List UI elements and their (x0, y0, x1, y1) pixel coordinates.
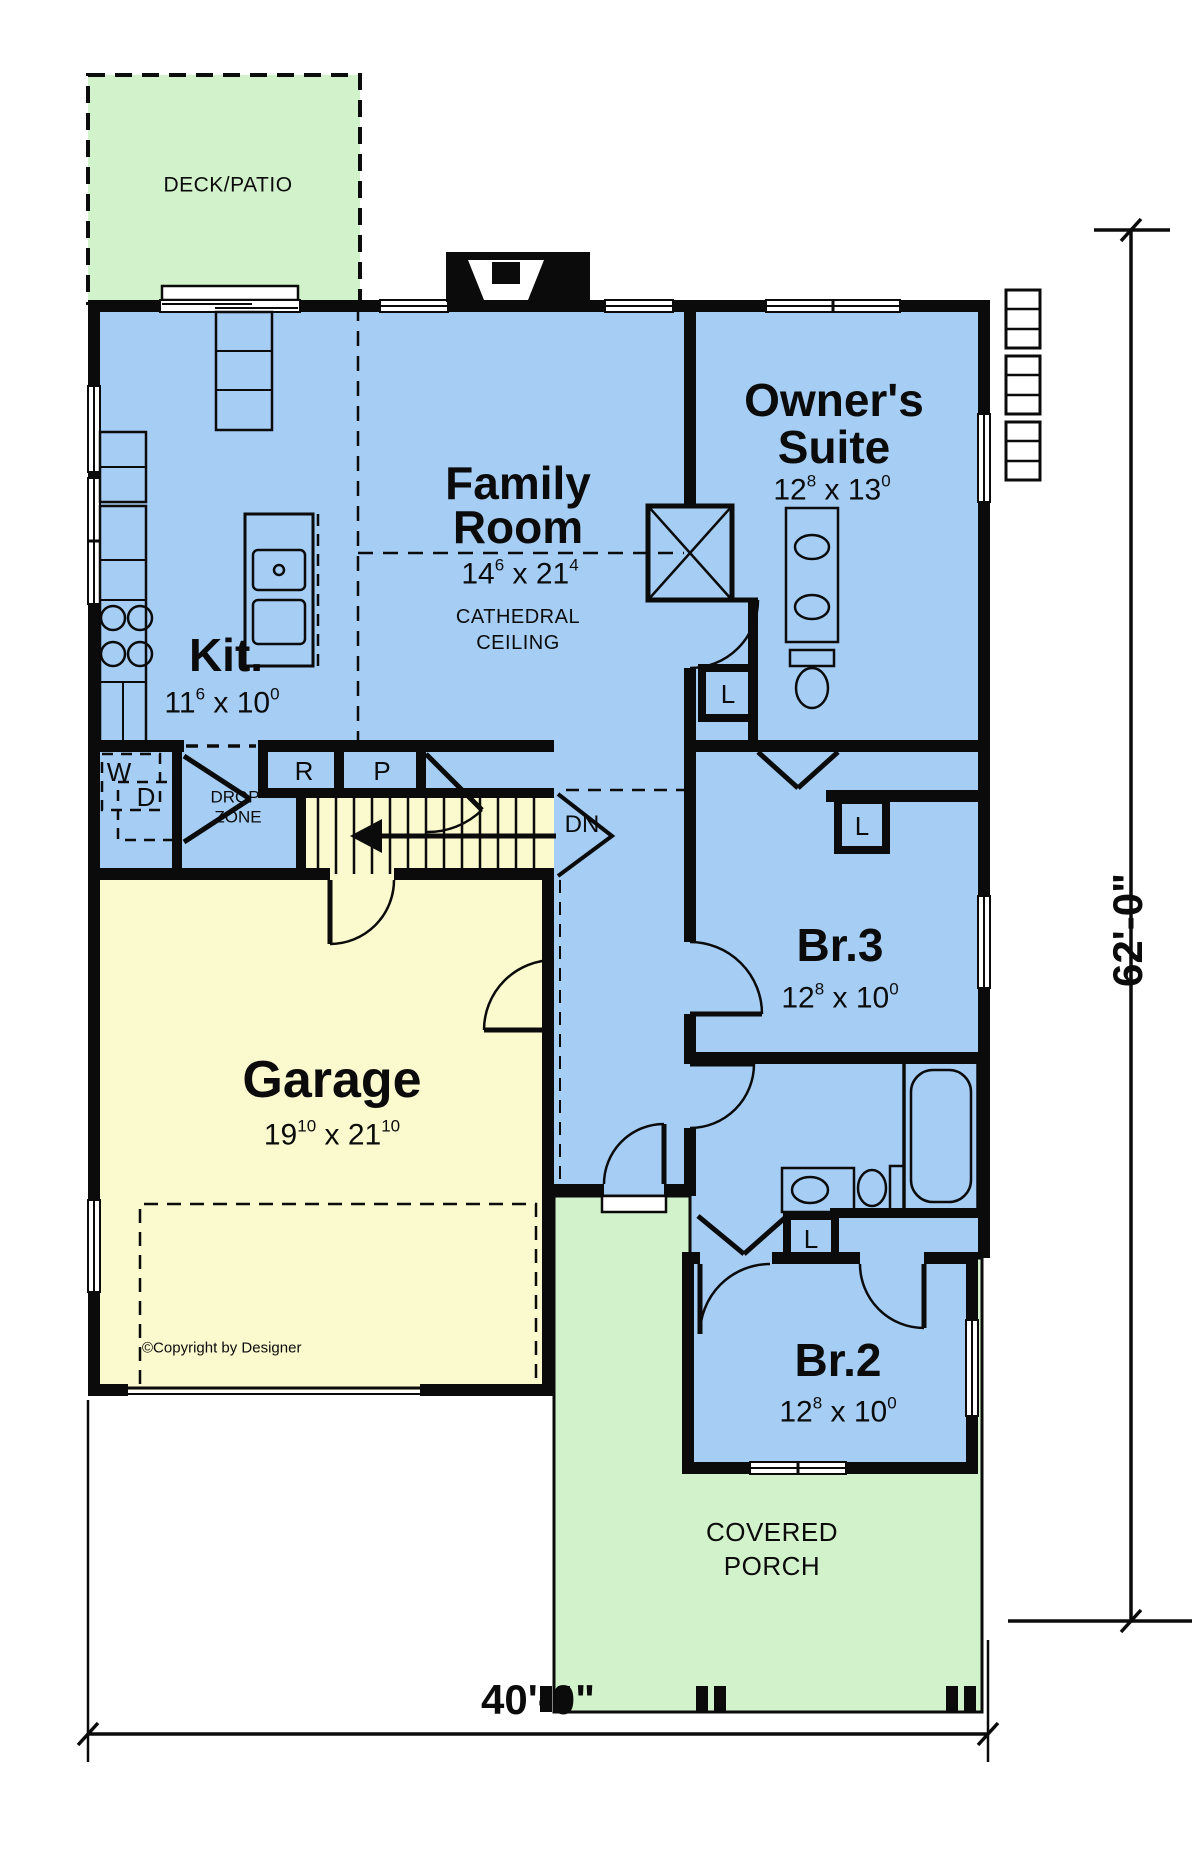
bedroom2-label: Br.2 (795, 1337, 882, 1383)
copyright-notice: ©Copyright by Designer (142, 1341, 301, 1356)
owners-suite-dimensions: 128 x 130 (773, 475, 890, 506)
garage-dimensions: 1910 x 2110 (264, 1120, 400, 1151)
family-room-dimensions: 146 x 214 (461, 559, 578, 590)
covered-porch-label-line2: PORCH (724, 1553, 820, 1579)
stairs-down-label: DN (565, 813, 600, 837)
floor-plan-drawing (0, 0, 1200, 1851)
linen-closet-label-1: L (721, 681, 735, 707)
bedroom2-dimensions: 128 x 100 (779, 1397, 896, 1428)
fireplace (446, 252, 590, 302)
washer-label: W (107, 759, 132, 785)
dryer-label: D (137, 784, 156, 810)
garage-label: Garage (242, 1054, 421, 1106)
bedroom3-label: Br.3 (797, 922, 884, 968)
owners-suite-label-line2: Suite (778, 424, 890, 470)
owners-suite-label-line1: Owner's (744, 377, 924, 423)
drop-zone-label-line1: DROP (210, 789, 259, 806)
floor-plan: DECK/PATIO Family Room 146 x 214 CATHEDR… (0, 0, 1200, 1851)
pantry-closet-label: P (373, 758, 390, 784)
width-dimension-label: 40'-0" (481, 1679, 595, 1721)
range-closet-label: R (295, 758, 314, 784)
drop-zone-label-line2: ZONE (214, 809, 261, 826)
linen-closet-label-2: L (855, 813, 869, 839)
depth-dimension-label: 62'-0" (1107, 873, 1149, 987)
bedroom3-dimensions: 128 x 100 (781, 983, 898, 1014)
cathedral-ceiling-note-line1: CATHEDRAL (456, 607, 580, 627)
kitchen-label: Kit. (189, 632, 263, 678)
kitchen-dimensions: 116 x 100 (164, 688, 279, 719)
family-room-label-line2: Room (453, 504, 583, 550)
family-room-label-line1: Family (445, 460, 591, 506)
linen-closet-label-3: L (804, 1226, 818, 1252)
deck-patio-label: DECK/PATIO (163, 175, 292, 196)
covered-porch-label-line1: COVERED (706, 1519, 838, 1545)
hall-bedroom-wing-area (554, 752, 984, 1258)
cathedral-ceiling-note-line2: CEILING (476, 633, 560, 653)
